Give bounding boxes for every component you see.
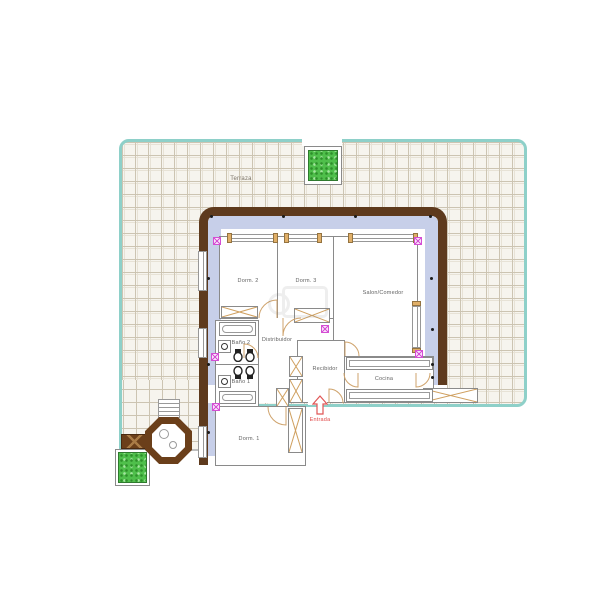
entrance-label: Entrada xyxy=(310,417,331,423)
kitchen-counter-bottom xyxy=(346,389,433,402)
watermark xyxy=(268,286,324,314)
symbol-magenta xyxy=(414,237,422,245)
window-post xyxy=(284,233,289,243)
symbol-magenta xyxy=(321,325,329,333)
window-dorm1-left xyxy=(198,426,207,458)
stairs-icon xyxy=(158,399,180,418)
ceiling-dot xyxy=(207,277,210,280)
plant-icon xyxy=(308,150,338,181)
window-salon-top xyxy=(352,234,414,242)
label-dorm1: Dorm. 1 xyxy=(239,436,260,442)
ceiling-dot xyxy=(431,376,434,379)
kitchen-counter-top xyxy=(346,357,433,370)
window-banio-left xyxy=(198,328,207,358)
sink-icon xyxy=(218,375,231,388)
symbol-magenta xyxy=(415,350,423,358)
plant-icon xyxy=(118,452,147,483)
ceiling-dot xyxy=(207,363,210,366)
toilet-icon xyxy=(233,366,243,379)
label-dorm3: Dorm. 3 xyxy=(296,278,317,284)
window-post xyxy=(348,233,353,243)
window-post xyxy=(227,233,232,243)
ceiling-dot xyxy=(354,215,357,218)
terrace-label: Terraza xyxy=(230,176,251,182)
bathtub-icon xyxy=(219,322,256,336)
terrace-border-notch xyxy=(302,133,342,146)
label-cocina: Cocina xyxy=(375,376,393,382)
closet-hall xyxy=(276,388,289,407)
symbol-magenta xyxy=(211,353,219,361)
window-dorm2 xyxy=(231,234,274,242)
ceiling-dot xyxy=(210,215,213,218)
room-salon-comedor xyxy=(333,236,418,357)
label-dorm2: Dorm. 2 xyxy=(238,278,259,284)
window-dorm2-left xyxy=(198,251,207,291)
ceiling-dot xyxy=(431,328,434,331)
window-post xyxy=(412,301,421,306)
label-distribuidor: Distribuidor xyxy=(262,337,292,343)
sink-icon xyxy=(218,340,231,353)
window-post xyxy=(317,233,322,243)
ceiling-dot xyxy=(431,363,434,366)
bathtub-icon xyxy=(219,391,256,404)
planter-bottom-left xyxy=(115,449,150,486)
bench-icon xyxy=(121,434,148,449)
label-banio1: Baño 1 xyxy=(232,379,251,385)
ceiling-dot xyxy=(207,431,210,434)
planter-top xyxy=(304,146,342,185)
toilet-icon xyxy=(233,349,243,362)
hot-tub-detail xyxy=(169,441,177,449)
bidet-icon xyxy=(245,366,255,379)
closet-recibidor-lower xyxy=(289,379,303,403)
ceiling-dot xyxy=(429,215,432,218)
ceiling-dot xyxy=(282,215,285,218)
floor-plan-canvas: Terraza xyxy=(0,0,600,600)
wardrobe-dorm1 xyxy=(288,408,303,453)
symbol-magenta xyxy=(213,237,221,245)
window-dorm3 xyxy=(288,234,318,242)
window-salon-right xyxy=(412,306,421,348)
ceiling-dot xyxy=(430,277,433,280)
label-banio2: Baño 2 xyxy=(232,340,251,346)
closet-recibidor-upper xyxy=(289,356,303,377)
label-salon-comedor: Salon/Comedor xyxy=(363,290,404,296)
hot-tub-detail xyxy=(159,429,169,439)
window-post xyxy=(273,233,278,243)
wardrobe-dorm2 xyxy=(221,306,258,318)
hot-tub-interior xyxy=(152,424,185,457)
label-recibidor: Recibidor xyxy=(312,366,337,372)
symbol-magenta xyxy=(212,403,220,411)
bidet-icon xyxy=(245,349,255,362)
